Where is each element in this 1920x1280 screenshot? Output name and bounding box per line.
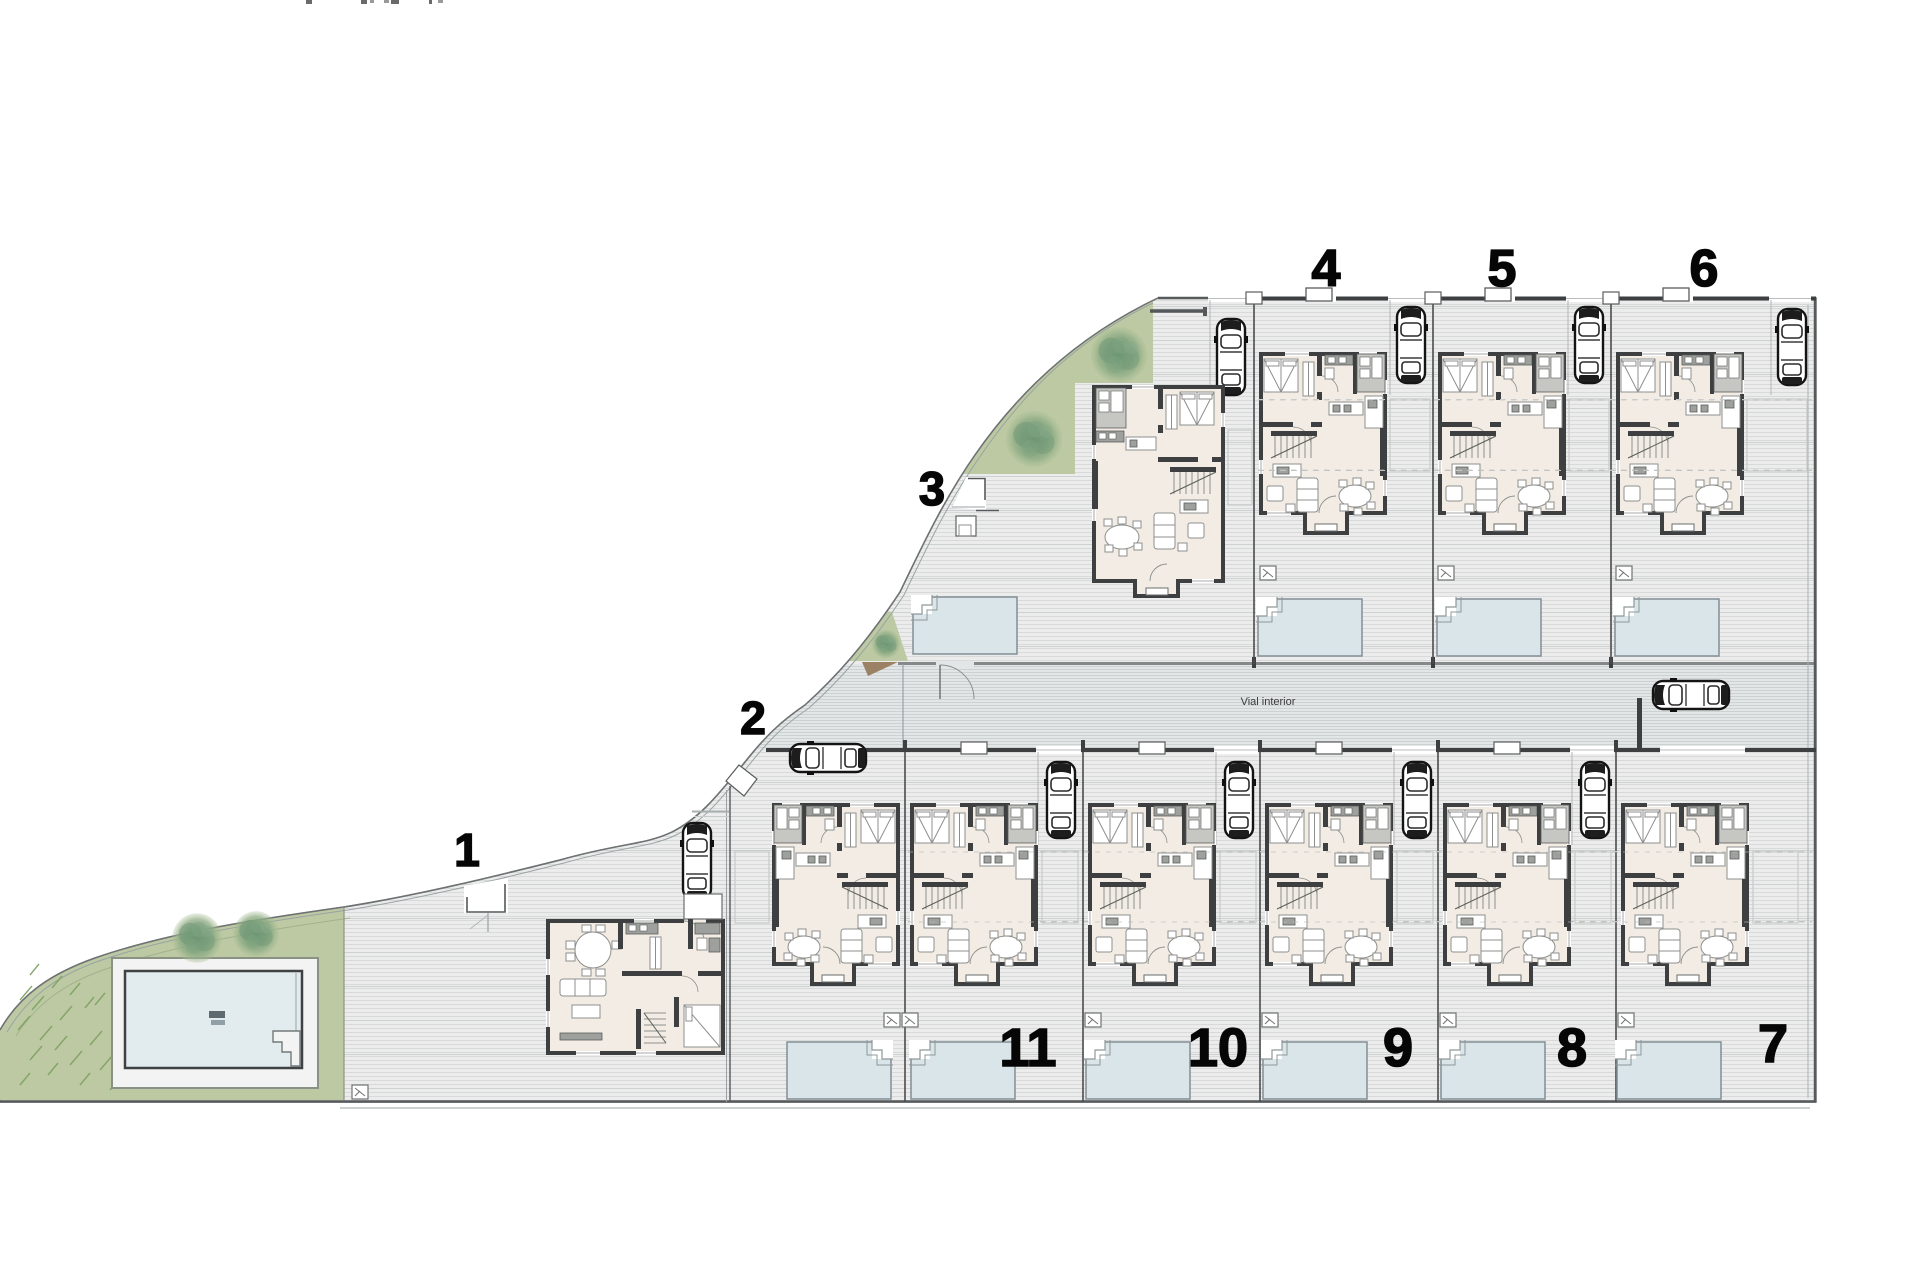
svg-text:7: 7: [1758, 1014, 1788, 1074]
svg-text:2: 2: [740, 692, 766, 744]
svg-text:1: 1: [454, 824, 480, 876]
svg-text:4: 4: [1312, 240, 1341, 298]
svg-text:6: 6: [1690, 240, 1719, 298]
svg-text:8: 8: [1557, 1018, 1587, 1078]
svg-text:10: 10: [1188, 1018, 1248, 1078]
svg-text:Vial interior: Vial interior: [1241, 696, 1296, 708]
svg-text:9: 9: [1383, 1018, 1413, 1078]
svg-text:11: 11: [999, 1018, 1056, 1078]
svg-text:5: 5: [1488, 240, 1517, 298]
svg-text:3: 3: [919, 462, 945, 515]
